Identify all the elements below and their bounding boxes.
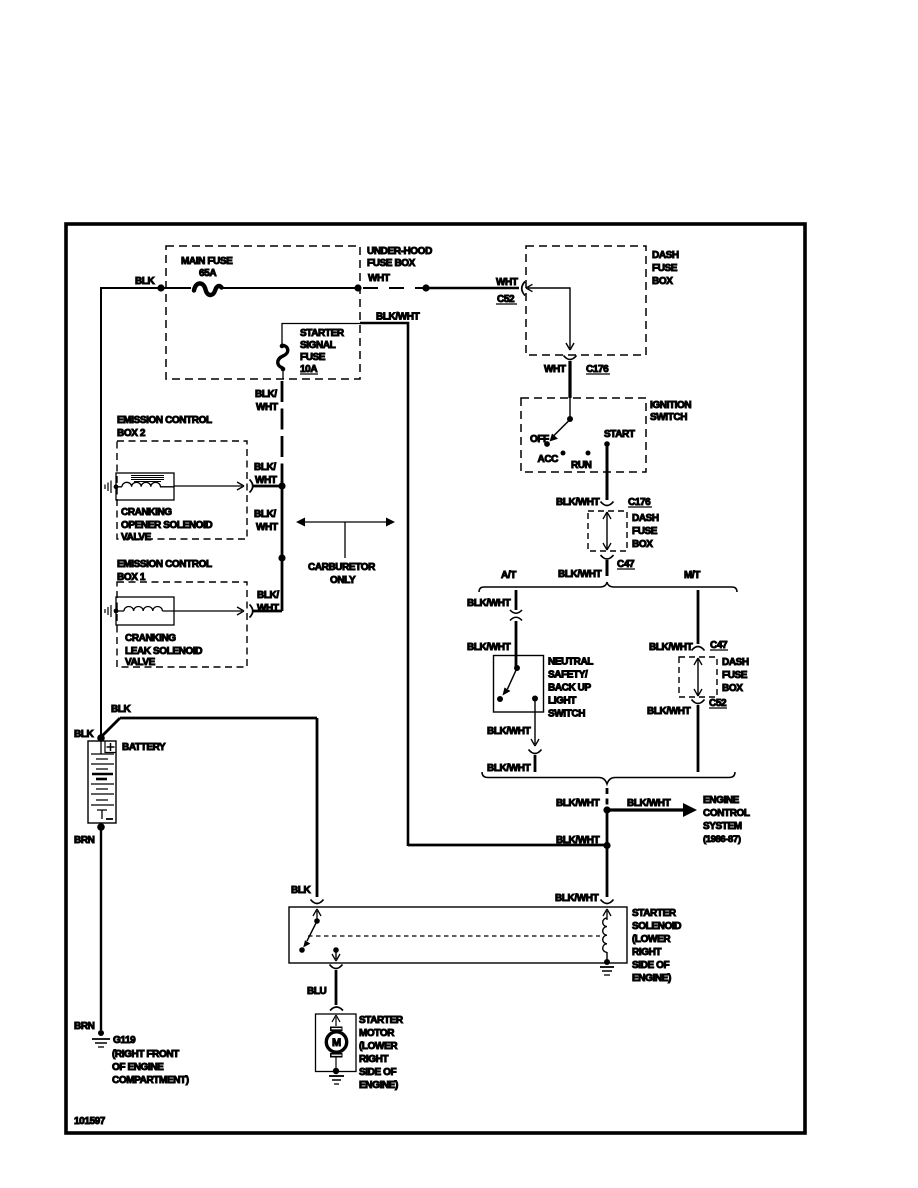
svg-text:FUSE: FUSE xyxy=(300,352,326,363)
svg-text:BLU: BLU xyxy=(307,986,327,997)
svg-text:ENGINE): ENGINE) xyxy=(632,973,671,984)
svg-text:WHT: WHT xyxy=(368,273,390,284)
svg-text:SWITCH: SWITCH xyxy=(548,709,585,720)
svg-text:COMPARTMENT): COMPARTMENT) xyxy=(112,1075,189,1086)
svg-text:(LOWER: (LOWER xyxy=(632,934,671,945)
svg-text:FUSE BOX: FUSE BOX xyxy=(367,258,416,269)
svg-text:OF ENGINE: OF ENGINE xyxy=(112,1062,164,1073)
svg-text:BLK/WHT: BLK/WHT xyxy=(627,798,671,809)
svg-text:BLK/WHT: BLK/WHT xyxy=(558,569,602,580)
svg-text:WHT: WHT xyxy=(256,402,278,413)
svg-text:STARTER: STARTER xyxy=(359,1015,404,1026)
svg-text:65A: 65A xyxy=(199,268,216,279)
svg-text:BLK/WHT: BLK/WHT xyxy=(649,642,693,653)
svg-text:BLK/: BLK/ xyxy=(257,590,279,601)
svg-text:STARTER: STARTER xyxy=(632,908,677,919)
svg-text:M/T: M/T xyxy=(684,570,700,581)
svg-text:SOLENOID: SOLENOID xyxy=(632,921,681,932)
svg-text:BATTERY: BATTERY xyxy=(122,742,166,753)
svg-text:BLK/WHT: BLK/WHT xyxy=(556,798,600,809)
svg-text:ONLY: ONLY xyxy=(330,575,356,586)
svg-text:BLK/WHT: BLK/WHT xyxy=(487,763,531,774)
svg-text:ENGINE: ENGINE xyxy=(703,795,740,806)
svg-text:BLK/: BLK/ xyxy=(255,389,277,400)
svg-text:START: START xyxy=(604,429,635,440)
svg-text:OFF: OFF xyxy=(530,434,549,445)
svg-text:(LOWER: (LOWER xyxy=(359,1041,398,1052)
svg-text:SAFETY/: SAFETY/ xyxy=(548,670,588,681)
svg-text:SIGNAL: SIGNAL xyxy=(300,340,336,351)
svg-text:LIGHT: LIGHT xyxy=(548,696,576,707)
svg-text:OPENER SOLENOID: OPENER SOLENOID xyxy=(121,520,212,531)
svg-text:BOX: BOX xyxy=(652,276,673,287)
svg-text:RIGHT: RIGHT xyxy=(632,947,661,958)
svg-text:BLK/WHT: BLK/WHT xyxy=(647,706,691,717)
svg-text:BLK/WHT: BLK/WHT xyxy=(467,642,511,653)
svg-text:C52: C52 xyxy=(497,294,515,305)
svg-text:BOX 2: BOX 2 xyxy=(117,428,146,439)
svg-text:FUSE: FUSE xyxy=(632,526,658,537)
svg-text:BLK/WHT: BLK/WHT xyxy=(376,312,420,323)
svg-text:LEAK SOLENOID: LEAK SOLENOID xyxy=(125,646,202,657)
svg-text:C52: C52 xyxy=(709,698,727,709)
svg-text:BLK: BLK xyxy=(74,729,95,740)
svg-text:BOX: BOX xyxy=(632,539,653,550)
svg-text:BRN: BRN xyxy=(74,1021,95,1032)
svg-text:SIDE OF: SIDE OF xyxy=(359,1067,396,1078)
svg-text:EMISSION CONTROL: EMISSION CONTROL xyxy=(117,415,212,426)
svg-text:UNDER-HOOD: UNDER-HOOD xyxy=(367,246,432,257)
svg-text:BLK: BLK xyxy=(111,704,132,715)
svg-text:ENGINE): ENGINE) xyxy=(359,1080,398,1091)
svg-text:FUSE: FUSE xyxy=(722,670,748,681)
svg-text:C47: C47 xyxy=(710,640,728,651)
svg-text:FUSE: FUSE xyxy=(652,263,678,274)
svg-text:ACC: ACC xyxy=(538,454,559,465)
svg-text:CRANKING: CRANKING xyxy=(125,633,176,644)
svg-text:C176: C176 xyxy=(628,497,651,508)
svg-text:STARTER: STARTER xyxy=(300,328,345,339)
svg-text:CONTROL: CONTROL xyxy=(703,808,750,819)
svg-text:DASH: DASH xyxy=(632,513,659,524)
svg-text:VALVE: VALVE xyxy=(125,657,156,668)
svg-text:101597: 101597 xyxy=(74,1116,106,1127)
svg-text:BLK/WHT: BLK/WHT xyxy=(487,726,531,737)
svg-text:VALVE: VALVE xyxy=(121,532,152,543)
svg-text:EMISSION CONTROL: EMISSION CONTROL xyxy=(117,559,212,570)
svg-text:(RIGHT FRONT: (RIGHT FRONT xyxy=(112,1049,179,1060)
svg-text:BLK/WHT: BLK/WHT xyxy=(555,893,599,904)
svg-text:BLK/WHT: BLK/WHT xyxy=(556,497,600,508)
svg-text:MOTOR: MOTOR xyxy=(359,1028,395,1039)
svg-text:WHT: WHT xyxy=(256,522,278,533)
svg-text:WHT: WHT xyxy=(496,277,518,288)
svg-text:10A: 10A xyxy=(300,364,317,375)
svg-text:M: M xyxy=(332,1037,341,1049)
svg-text:CRANKING: CRANKING xyxy=(121,507,172,518)
svg-text:BLK/WHT: BLK/WHT xyxy=(467,598,511,609)
svg-text:BLK/: BLK/ xyxy=(254,462,276,473)
svg-text:A/T: A/T xyxy=(501,570,516,581)
svg-text:DASH: DASH xyxy=(652,250,679,261)
svg-text:SWITCH: SWITCH xyxy=(650,412,687,423)
svg-text:C176: C176 xyxy=(586,364,609,375)
svg-text:CARBURETOR: CARBURETOR xyxy=(308,562,376,573)
svg-text:C47: C47 xyxy=(617,559,635,570)
svg-text:BOX 1: BOX 1 xyxy=(117,572,146,583)
svg-text:BRN: BRN xyxy=(74,835,95,846)
svg-text:SYSTEM: SYSTEM xyxy=(703,821,742,832)
svg-text:BLK/: BLK/ xyxy=(254,509,276,520)
svg-text:RIGHT: RIGHT xyxy=(359,1054,388,1065)
svg-text:(1986-87): (1986-87) xyxy=(703,834,741,845)
svg-text:BACK UP: BACK UP xyxy=(548,683,591,694)
svg-text:BLK: BLK xyxy=(291,885,312,896)
svg-text:SIDE OF: SIDE OF xyxy=(632,960,669,971)
svg-text:DASH: DASH xyxy=(722,657,749,668)
svg-text:BLK: BLK xyxy=(135,276,156,287)
svg-text:RUN: RUN xyxy=(571,460,592,471)
svg-text:G119: G119 xyxy=(113,1035,136,1046)
svg-text:WHT: WHT xyxy=(544,364,566,375)
svg-text:WHT: WHT xyxy=(255,475,277,486)
svg-text:BOX: BOX xyxy=(722,683,743,694)
svg-text:IGNITION: IGNITION xyxy=(650,400,691,411)
svg-text:NEUTRAL: NEUTRAL xyxy=(548,657,593,668)
svg-text:MAIN FUSE: MAIN FUSE xyxy=(181,256,233,267)
